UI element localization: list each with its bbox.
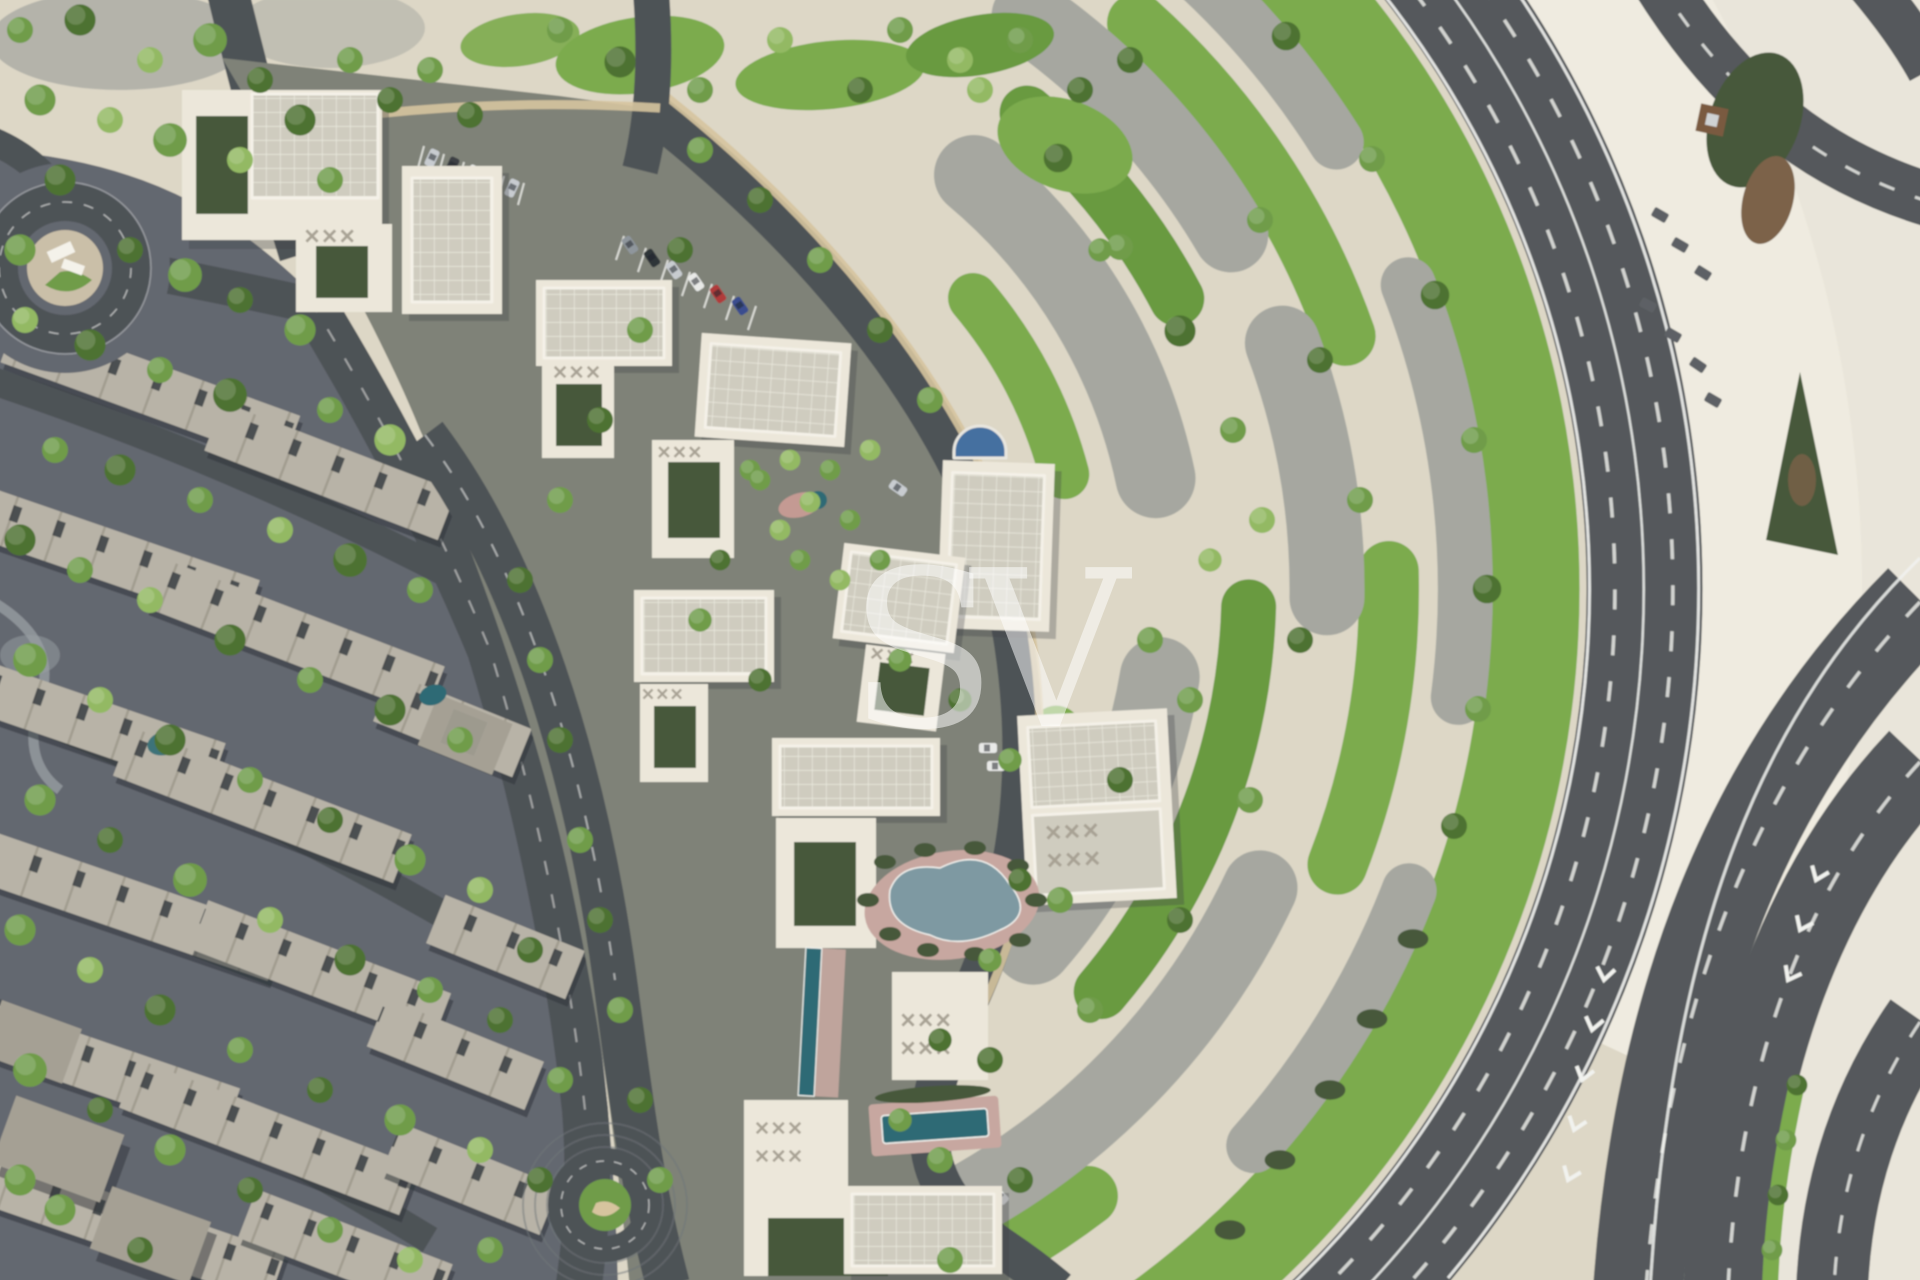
aerial-masterplan-render: SV bbox=[0, 0, 1920, 1280]
render-canvas: SV bbox=[0, 0, 1920, 1280]
building-b2 bbox=[402, 166, 509, 321]
building-b7 bbox=[652, 440, 734, 558]
gazebo bbox=[1695, 103, 1728, 136]
building-b12 bbox=[892, 972, 988, 1080]
building-b5 bbox=[694, 333, 858, 455]
lap-pool bbox=[867, 1082, 1001, 1157]
watermark-text: SV bbox=[848, 525, 1132, 778]
linear-pool bbox=[798, 948, 846, 1098]
